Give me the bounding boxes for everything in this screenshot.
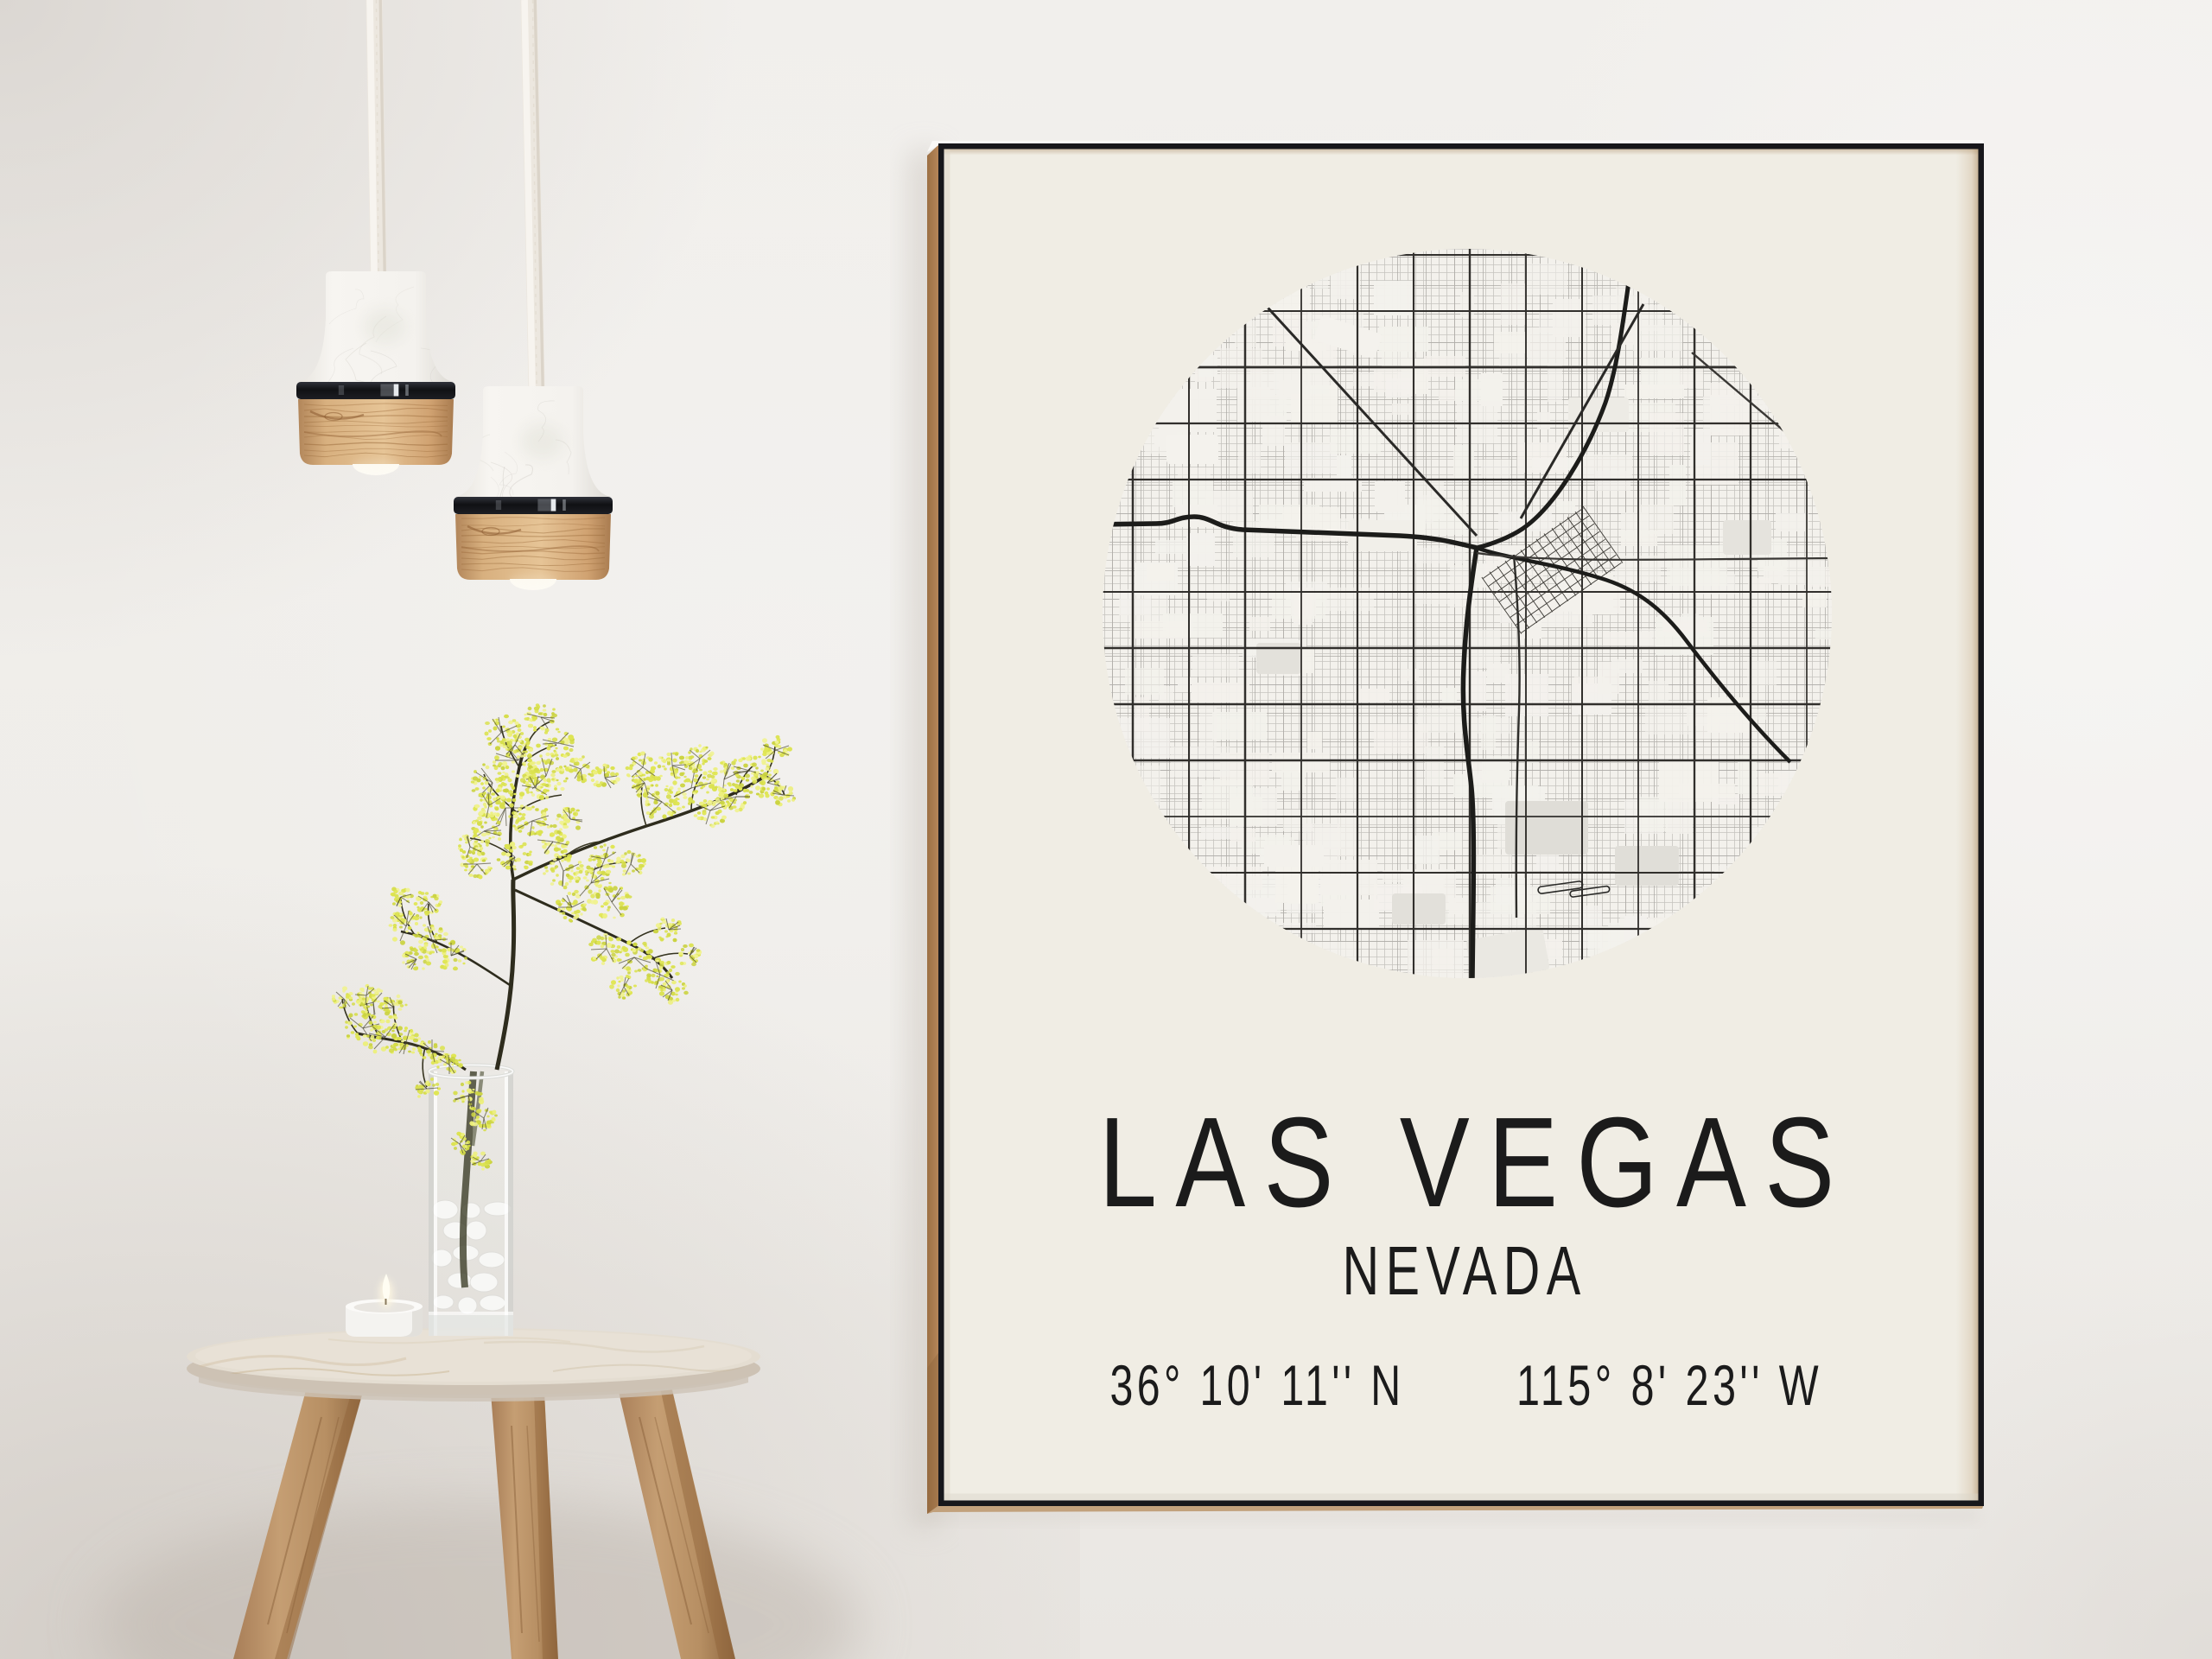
svg-text:LAS VEGAS: LAS VEGAS (1099, 1091, 1853, 1234)
svg-text:NEVADA: NEVADA (1343, 1232, 1587, 1309)
svg-text:36° 10' 11'' N: 36° 10' 11'' N (1110, 1353, 1405, 1417)
svg-text:115° 8' 23'' W: 115° 8' 23'' W (1516, 1353, 1822, 1417)
